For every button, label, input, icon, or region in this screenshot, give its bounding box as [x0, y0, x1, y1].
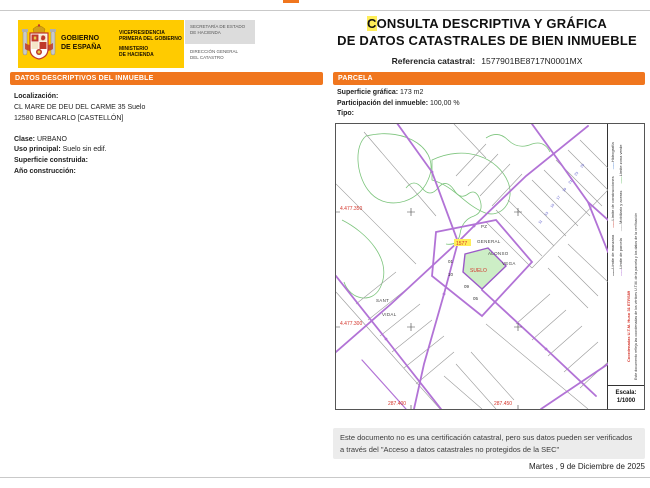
title-line-2: DE DATOS CATASTRALES DE BIEN INMUEBLE [328, 33, 646, 50]
clase-row: Clase: URBANO [14, 135, 314, 146]
reference-label: Referencia catastral: [392, 56, 476, 66]
address-line-2: 12580 BENICARLO [CASTELLÓN] [14, 114, 314, 125]
legend-row-1: —— Límite de manzana —— Límite de constr… [610, 136, 615, 276]
legend-row-2: —— Límite de parcela —— Mobiliario y ace… [618, 139, 623, 276]
certification-disclaimer: Este documento no es una certificación c… [333, 428, 645, 459]
parcela-panel: Superficie gráfica: 173 m2 Participación… [337, 88, 637, 120]
coord-bottom-x2: 287.450 [494, 401, 512, 407]
participacion-value: 100,00 % [430, 100, 460, 107]
svg-text:11: 11 [538, 219, 543, 224]
coord-bottom-x1: 287.400 [388, 401, 406, 407]
reference-value: 1577901BE8717N0001MX [481, 56, 582, 66]
street-label-vega: VEGA [502, 261, 516, 266]
svg-text:10: 10 [448, 272, 454, 277]
street-label-general: GENERAL [477, 239, 501, 244]
gobierno-espana-label: GOBIERNO DE ESPAÑA [61, 35, 113, 53]
cadastral-map: 1577 SUELO 01 10 09 05 PZ GENERAL ALONSO… [336, 124, 608, 409]
page-top-rule [0, 10, 650, 11]
superficie-construida-label: Superficie construida: [14, 156, 314, 167]
map-legend-column: —— Límite de manzana —— Límite de constr… [608, 124, 644, 409]
datos-descriptivos-panel: Localización: CL MARE DE DEU DEL CARME 3… [14, 92, 314, 178]
tipo-label: Tipo: [337, 109, 637, 120]
document-title: CONSULTA DESCRIPTIVA Y GRÁFICA DE DATOS … [328, 16, 646, 66]
legend-utm-note: Coordenadas U.T.M. Huso 31 ETRS89 [626, 291, 631, 362]
svg-text:15: 15 [550, 203, 556, 209]
cadastral-map-frame: 1577 SUELO 01 10 09 05 PZ GENERAL ALONSO… [335, 123, 645, 410]
localizacion-label: Localización: [14, 92, 314, 103]
title-highlight: C [367, 16, 377, 31]
coord-top-left: 4.477.350 [340, 206, 362, 212]
parcel-ref-highlight-text: 1577 [456, 241, 467, 247]
government-logo-band: GOBIERNO DE ESPAÑA VICEPRESIDENCIA PRIME… [18, 20, 184, 68]
cadastral-map-svg: 1577 SUELO 01 10 09 05 PZ GENERAL ALONSO… [336, 124, 608, 409]
vegetation-contours [342, 134, 550, 298]
secretaria-estado-label: SECRETARÍA DE ESTADO DE HACIENDA [185, 20, 255, 44]
scale-label: Escala: [608, 389, 644, 397]
svg-text:17: 17 [556, 195, 562, 201]
parcel-suelo-label: SUELO [470, 268, 487, 274]
uso-row: Uso principal: Suelo sin edif. [14, 145, 314, 156]
svg-text:09: 09 [464, 284, 470, 289]
cadastral-reference: Referencia catastral:1577901BE8717N0001M… [328, 56, 646, 66]
top-orange-mark [283, 0, 299, 3]
document-date: Martes , 9 de Diciembre de 2025 [345, 462, 645, 471]
street-label-vidal: VIDAL [382, 312, 397, 317]
svg-text:05: 05 [473, 296, 479, 301]
ministry-labels: VICEPRESIDENCIA PRIMERA DEL GOBIERNO MIN… [119, 27, 182, 62]
anio-construccion-label: Año construcción: [14, 167, 314, 178]
svg-text:19: 19 [562, 187, 568, 193]
svg-text:25: 25 [580, 163, 586, 169]
parcela-header: PARCELA [333, 72, 645, 85]
address-line-1: CL MARE DE DEU DEL CARME 35 Suelo [14, 103, 314, 114]
svg-text:23: 23 [574, 171, 580, 177]
coord-bottom-left: 4.477.300 [340, 321, 362, 327]
legend-side-note: Este documento refleja las coordenadas d… [634, 213, 638, 380]
participacion-row: Participación del inmueble: 100,00 % [337, 99, 637, 110]
street-label-alonso: ALONSO [488, 251, 509, 256]
page-bottom-rule [0, 477, 650, 478]
uso-value: Suelo sin edif. [63, 146, 107, 153]
superficie-grafica-value: 173 m2 [400, 89, 423, 96]
svg-text:13: 13 [544, 211, 550, 217]
street-label-sant: SANT [376, 298, 389, 303]
utm-coordinate-labels: 4.477.350 4.477.300 287.400 287.450 [340, 206, 512, 407]
title-line-1: CONSULTA DESCRIPTIVA Y GRÁFICA [328, 16, 646, 33]
map-scale: Escala: 1/1000 [608, 385, 644, 409]
svg-text:01: 01 [448, 259, 454, 264]
cadastral-consultation-page: GOBIERNO DE ESPAÑA VICEPRESIDENCIA PRIME… [0, 0, 650, 488]
spain-coat-of-arms-icon [21, 23, 57, 65]
datos-descriptivos-header: DATOS DESCRIPTIVOS DEL INMUEBLE [10, 72, 323, 85]
superficie-grafica-row: Superficie gráfica: 173 m2 [337, 88, 637, 99]
direccion-general-catastro-label: DIRECCIÓN GENERAL DEL CATASTRO [185, 46, 255, 68]
portal-numbers: 11 13 15 17 19 21 23 25 [538, 163, 586, 225]
scale-value: 1/1000 [608, 397, 644, 405]
street-label-pz: PZ [481, 224, 487, 229]
clase-value: URBANO [37, 136, 67, 143]
